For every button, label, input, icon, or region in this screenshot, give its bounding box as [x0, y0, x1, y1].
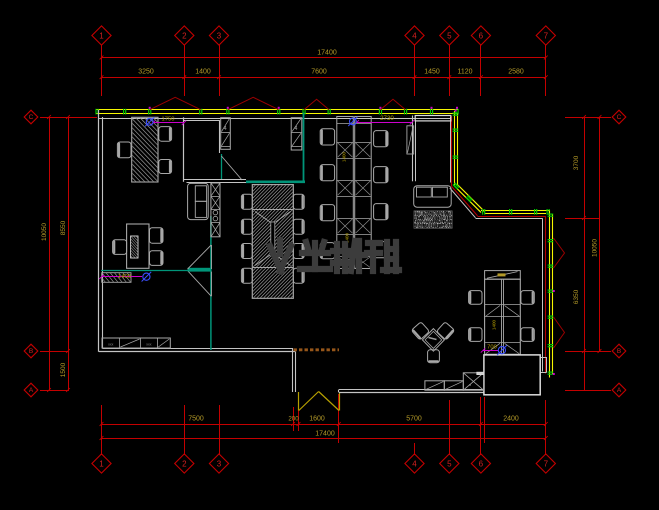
svg-text:3250: 3250	[138, 68, 154, 75]
svg-text:1400: 1400	[492, 319, 497, 330]
svg-text:1500: 1500	[60, 362, 67, 377]
svg-text:2580: 2580	[508, 68, 524, 75]
svg-text:200: 200	[288, 416, 299, 423]
svg-text:10050: 10050	[41, 223, 48, 241]
svg-text:A: A	[617, 387, 622, 394]
svg-text:7: 7	[544, 31, 549, 40]
svg-text:1400: 1400	[342, 151, 347, 162]
svg-text:4: 4	[224, 126, 227, 132]
svg-text:d: d	[469, 382, 471, 387]
svg-text:3700: 3700	[573, 155, 580, 170]
svg-text:3: 3	[217, 31, 222, 40]
svg-text:7600: 7600	[311, 68, 327, 75]
svg-text:6350: 6350	[573, 289, 580, 304]
svg-text:7500: 7500	[188, 416, 204, 423]
svg-text:4: 4	[295, 126, 298, 132]
svg-text:1120: 1120	[457, 68, 472, 75]
svg-text:A: A	[29, 387, 34, 394]
svg-text:5: 5	[447, 459, 452, 468]
svg-text:1600: 1600	[309, 416, 325, 423]
svg-text:6: 6	[479, 31, 484, 40]
svg-text:1: 1	[99, 459, 104, 468]
svg-text:B: B	[617, 348, 621, 355]
svg-text:17400: 17400	[317, 50, 337, 57]
svg-text:10050: 10050	[592, 239, 599, 257]
svg-text:700: 700	[487, 344, 497, 350]
svg-text:6: 6	[479, 459, 484, 468]
svg-text:2: 2	[182, 31, 187, 40]
svg-text:2730: 2730	[380, 115, 394, 122]
svg-text:5700: 5700	[406, 416, 422, 423]
svg-text:1750: 1750	[162, 116, 175, 122]
svg-text:4: 4	[412, 31, 417, 40]
svg-text:1400: 1400	[118, 274, 131, 280]
svg-text:C: C	[29, 114, 34, 121]
svg-text:B: B	[29, 348, 33, 355]
svg-text:1: 1	[99, 31, 104, 40]
svg-text:C: C	[617, 114, 622, 121]
svg-text:xxx: xxx	[108, 342, 114, 346]
svg-text:1450: 1450	[424, 68, 440, 75]
svg-text:8550: 8550	[60, 220, 67, 235]
svg-text:17400: 17400	[315, 431, 335, 438]
svg-text:2400: 2400	[503, 416, 519, 423]
svg-text:1400: 1400	[195, 68, 211, 75]
svg-text:4: 4	[412, 459, 417, 468]
svg-text:2: 2	[182, 459, 187, 468]
svg-text:3: 3	[217, 459, 222, 468]
svg-text:7: 7	[544, 459, 549, 468]
svg-text:5: 5	[447, 31, 452, 40]
svg-text:xxx: xxx	[146, 342, 152, 346]
